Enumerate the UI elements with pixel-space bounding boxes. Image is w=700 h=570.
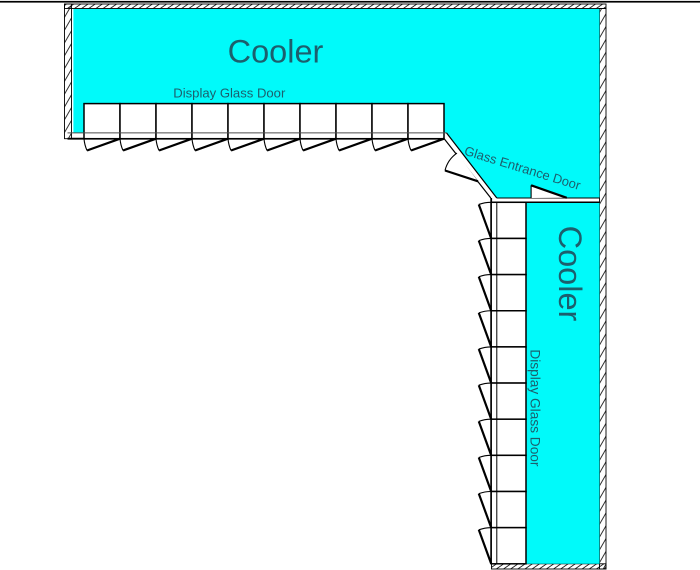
svg-text:Cooler: Cooler [228,34,324,70]
svg-text:Cooler: Cooler [552,226,588,322]
svg-text:Display Glass Door: Display Glass Door [173,86,286,101]
svg-text:Display Glass Door: Display Glass Door [528,349,543,467]
